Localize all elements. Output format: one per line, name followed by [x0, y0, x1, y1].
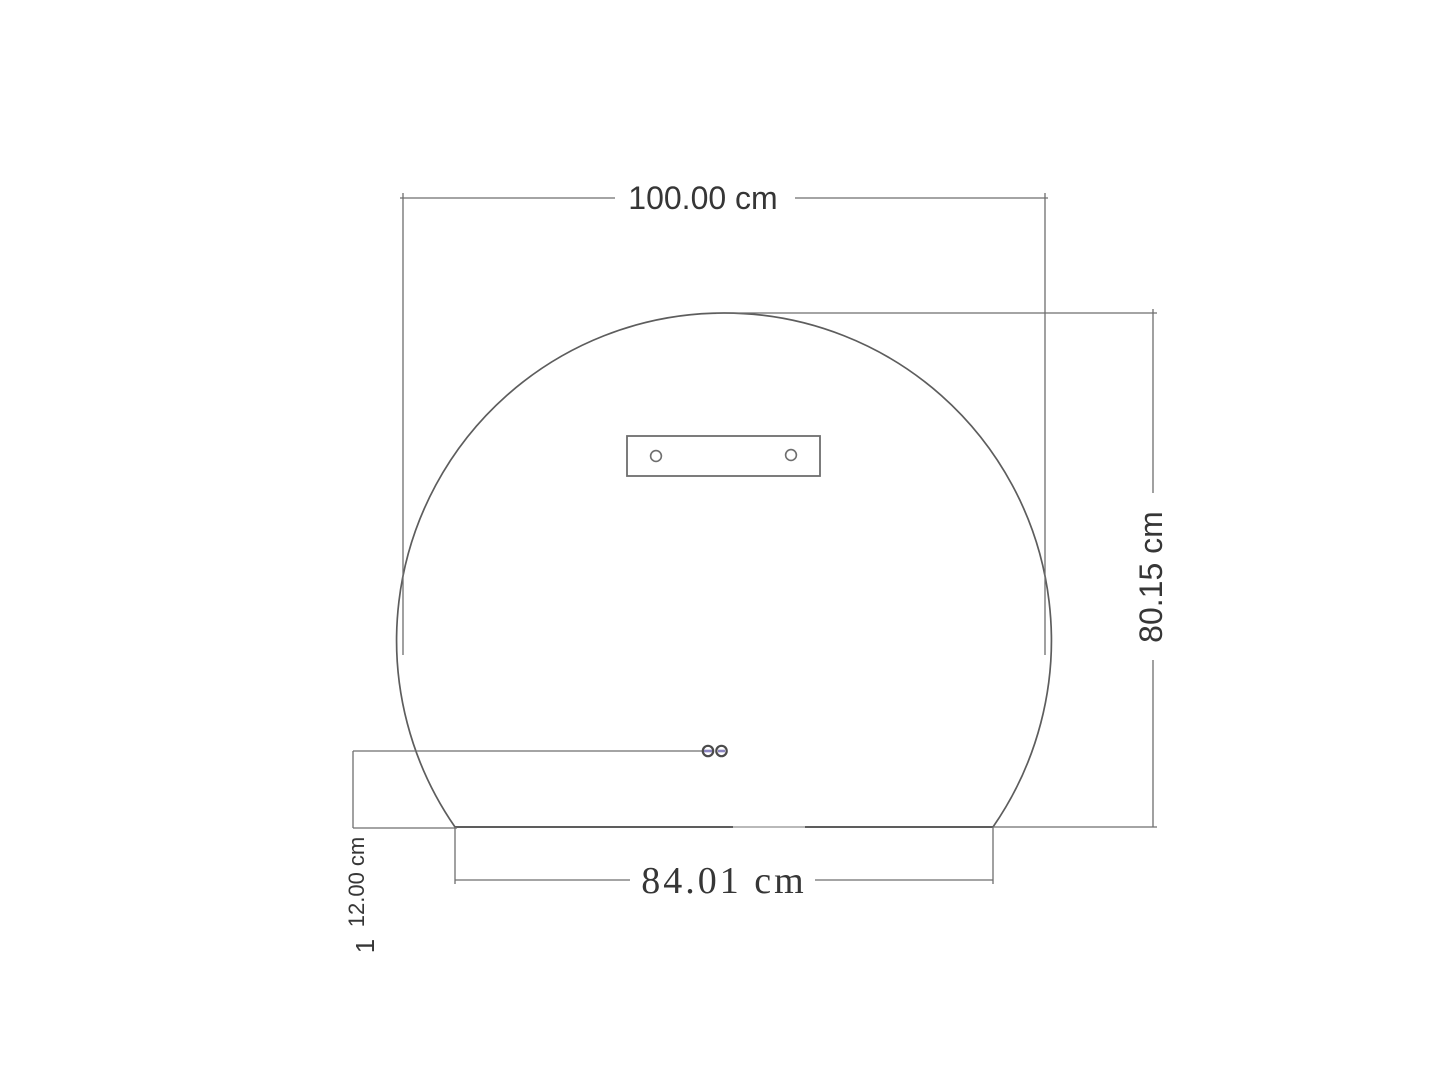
label-overall-width: 100.00 cm [628, 180, 777, 216]
label-base-width: 84.01 cm [641, 860, 806, 902]
dimension-lines [353, 193, 1157, 884]
page-number-label: 1 [350, 939, 380, 953]
mounting-bracket [627, 436, 820, 476]
bracket-hole-left [651, 451, 662, 462]
touch-sensors [703, 746, 727, 756]
label-sensor-offset: 12.00 cm [344, 837, 369, 928]
technical-drawing-canvas: 100.00 cm 80.15 cm 84.01 cm 12.00 cm 1 [0, 0, 1440, 1080]
mounting-bracket-group [627, 436, 820, 476]
drawing-sheet: 100.00 cm 80.15 cm 84.01 cm 12.00 cm 1 [0, 0, 1440, 1080]
label-overall-height: 80.15 cm [1133, 511, 1169, 643]
bracket-hole-right [786, 450, 797, 461]
